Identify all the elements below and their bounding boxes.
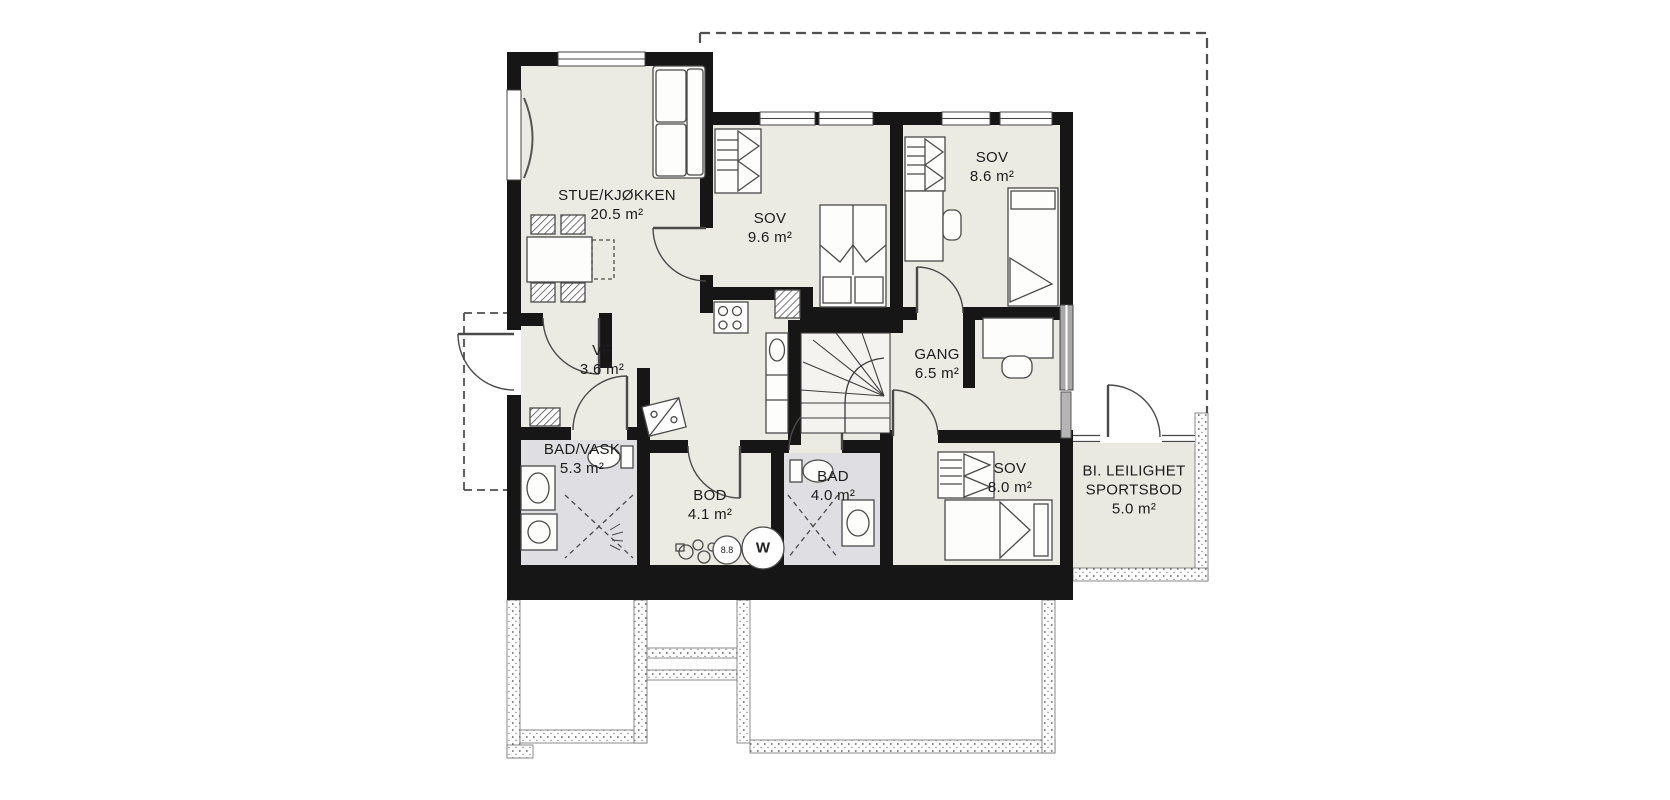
room-area: 20.5 m²: [558, 205, 676, 224]
room-name: BAD/VASK: [544, 440, 620, 459]
room-name: VF: [580, 341, 624, 360]
door-sportsbod: [1108, 385, 1160, 437]
door-right-wall-leaf: [1061, 392, 1071, 438]
room-label-sportsbod: BI. LEILIGHET SPORTSBOD 5.0 m²: [1082, 462, 1185, 519]
room-name: GANG: [914, 345, 959, 364]
bed-sov2-icon: [1008, 188, 1058, 306]
washer-bad-icon: [842, 500, 874, 546]
bench-hatch-vf-icon: [530, 408, 560, 426]
room-label-vf: VF 3.6 m²: [580, 341, 624, 379]
room-area: 9.6 m²: [748, 228, 792, 247]
staircase: [801, 333, 890, 433]
room-area: 5.3 m²: [544, 459, 620, 478]
room-name: SOV: [748, 209, 792, 228]
room-label-stue: STUE/KJØKKEN 20.5 m²: [558, 186, 676, 224]
room-name: SOV: [988, 459, 1032, 478]
room-area: 4.1 m²: [688, 505, 732, 524]
room-label-sov-3: SOV 8.0 m²: [988, 459, 1032, 497]
room-name: STUE/KJØKKEN: [558, 186, 676, 205]
room-name: BAD: [811, 467, 855, 486]
washer-badvask-icon: [521, 514, 557, 550]
wardrobe-sov3-icon: [938, 452, 994, 498]
wardrobe-sov1-icon: [715, 129, 761, 193]
fuse-box-label: 8.8: [721, 545, 734, 555]
water-heater-label: W: [756, 540, 770, 557]
entry-door: [458, 334, 514, 390]
room-name: BOD: [688, 486, 732, 505]
room-name: SPORTSBOD: [1082, 481, 1185, 500]
sofa-icon: [653, 66, 705, 178]
room-area: 4.0 m²: [811, 486, 855, 505]
wardrobe-sov2-icon: [905, 137, 945, 191]
window-right-wall: [1060, 305, 1073, 390]
room-area: 8.6 m²: [970, 167, 1014, 186]
window-stue-top: [558, 52, 645, 66]
window-sportsbod-top: [1073, 434, 1195, 443]
room-label-bad: BAD 4.0 m²: [811, 467, 855, 505]
room-label-gang: GANG 6.5 m²: [914, 345, 959, 383]
room-area: 3.6 m²: [580, 360, 624, 379]
room-name: SOV: [970, 148, 1014, 167]
room-area: 5.0 m²: [1082, 500, 1185, 519]
floor-plan-drawing: [0, 0, 1670, 800]
bed-sov3-icon: [945, 500, 1052, 560]
room-label-sov-1: SOV 9.6 m²: [748, 209, 792, 247]
room-label-sov-2: SOV 8.6 m²: [970, 148, 1014, 186]
room-area: 6.5 m²: [914, 364, 959, 383]
entry-porch-dashed-outline: [464, 313, 507, 490]
room-label-bad-vask: BAD/VASK 5.3 m²: [544, 440, 620, 478]
room-name: BI. LEILIGHET: [1082, 462, 1185, 481]
room-area: 8.0 m²: [988, 478, 1032, 497]
room-label-bod: BOD 4.1 m²: [688, 486, 732, 524]
cabinet-hatch-icon: [775, 290, 800, 318]
double-bed-icon: [820, 205, 886, 307]
floor-plan-page: STUE/KJØKKEN 20.5 m² SOV 9.6 m² SOV 8.6 …: [0, 0, 1670, 800]
